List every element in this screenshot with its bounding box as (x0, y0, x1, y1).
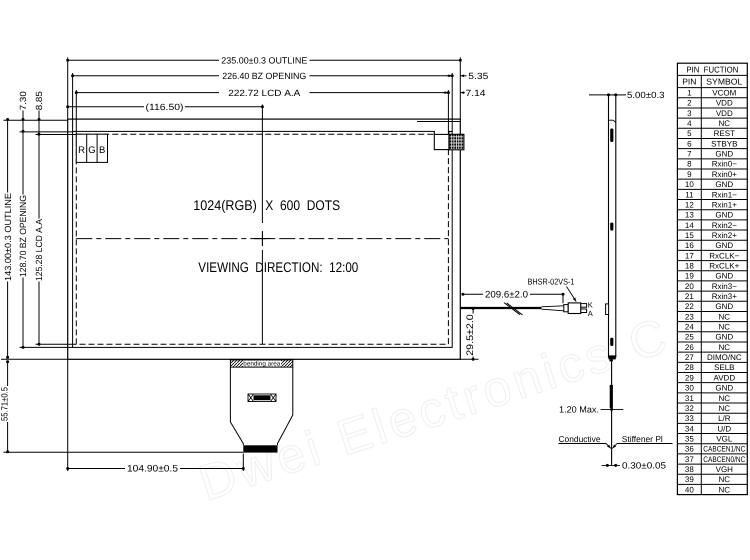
svg-text:9: 9 (687, 170, 692, 179)
svg-text:18: 18 (685, 261, 694, 270)
svg-text:30: 30 (685, 384, 694, 393)
svg-text:GND: GND (715, 150, 733, 159)
svg-text:bending area: bending area (243, 361, 281, 368)
svg-text:Rxin0+: Rxin0+ (712, 170, 737, 179)
svg-text:25: 25 (685, 333, 694, 342)
svg-text:NC: NC (719, 475, 731, 484)
svg-text:22: 22 (685, 302, 694, 311)
svg-text:L/R: L/R (718, 414, 731, 423)
svg-text:Conductive: Conductive (559, 434, 601, 444)
svg-text:21: 21 (685, 292, 694, 301)
svg-text:0.30±0.05: 0.30±0.05 (622, 461, 666, 471)
svg-text:19: 19 (685, 272, 694, 281)
svg-text:24: 24 (685, 323, 694, 332)
svg-text:4: 4 (687, 119, 692, 128)
svg-text:5.35: 5.35 (468, 71, 488, 81)
svg-text:29: 29 (685, 373, 694, 382)
svg-text:GND: GND (715, 241, 733, 250)
svg-text:NC: NC (719, 323, 731, 332)
svg-text:6: 6 (687, 139, 692, 148)
svg-text:40: 40 (685, 485, 694, 494)
svg-text:NC: NC (719, 343, 731, 352)
svg-text:Rxin1+: Rxin1+ (712, 200, 737, 209)
svg-text:RxCLK−: RxCLK− (709, 251, 739, 260)
svg-text:7: 7 (687, 150, 692, 159)
svg-text:SELB: SELB (714, 363, 734, 372)
svg-text:36: 36 (685, 445, 694, 454)
svg-text:34: 34 (685, 424, 694, 433)
svg-text:16: 16 (685, 241, 694, 250)
svg-text:31: 31 (685, 394, 694, 403)
svg-text:Rxin3+: Rxin3+ (712, 292, 737, 301)
svg-text:11: 11 (685, 190, 694, 199)
svg-text:DIMO/NC: DIMO/NC (707, 353, 742, 362)
svg-text:CABCEN0/NC: CABCEN0/NC (703, 455, 745, 464)
svg-text:PIN: PIN (682, 77, 696, 87)
svg-text:A: A (588, 309, 593, 318)
svg-text:Stiffener Pl: Stiffener Pl (622, 434, 663, 444)
svg-text:NC: NC (719, 119, 731, 128)
svg-text:8: 8 (687, 160, 692, 169)
svg-text:VGL: VGL (716, 434, 733, 443)
svg-text:14: 14 (685, 221, 694, 230)
svg-text:26: 26 (685, 343, 694, 352)
svg-text:CABCEN1/NC: CABCEN1/NC (703, 445, 745, 454)
svg-text:128.70 BZ OPENING: 128.70 BZ OPENING (18, 195, 28, 277)
svg-text:1: 1 (687, 89, 692, 98)
svg-text:55.71±0.5: 55.71±0.5 (0, 387, 9, 421)
svg-text:38: 38 (685, 465, 694, 474)
svg-text:Rxin0−: Rxin0− (712, 160, 737, 169)
svg-text:NC: NC (719, 404, 731, 413)
svg-text:NC: NC (719, 312, 731, 321)
svg-text:28: 28 (685, 363, 694, 372)
svg-text:3: 3 (687, 109, 692, 118)
svg-text:29.5±2.0: 29.5±2.0 (465, 314, 476, 356)
svg-text:VGH: VGH (716, 465, 734, 474)
svg-text:15: 15 (685, 231, 694, 240)
svg-text:R: R (78, 145, 85, 156)
svg-text:Rxin1−: Rxin1− (712, 190, 737, 199)
svg-text:VDD: VDD (716, 109, 733, 118)
svg-text:NC: NC (719, 485, 731, 494)
svg-text:VDD: VDD (716, 99, 733, 108)
svg-text:SYMBOL: SYMBOL (706, 77, 742, 87)
svg-text:2: 2 (687, 99, 692, 108)
svg-text:Rxin2+: Rxin2+ (712, 231, 737, 240)
svg-text:GND: GND (715, 333, 733, 342)
svg-text:8.85: 8.85 (34, 91, 44, 110)
svg-text:235.00±0.3 OUTLINE: 235.00±0.3 OUTLINE (221, 55, 307, 65)
svg-text:33: 33 (685, 414, 694, 423)
svg-text:104.90±0.5: 104.90±0.5 (127, 464, 178, 475)
svg-text:32: 32 (685, 404, 694, 413)
svg-text:U/D: U/D (717, 424, 731, 433)
svg-text:GND: GND (715, 272, 733, 281)
svg-text:GND: GND (715, 180, 733, 189)
svg-text:27: 27 (685, 353, 694, 362)
svg-text:1024(RGB): 1024(RGB) (193, 197, 256, 213)
svg-text:226.40 BZ OPENING: 226.40 BZ OPENING (222, 71, 306, 81)
svg-text:REST: REST (714, 129, 735, 138)
svg-text:Rxin2−: Rxin2− (712, 221, 737, 230)
svg-text:VIEWING DIRECTION: 12:00: VIEWING DIRECTION: 12:00 (198, 259, 358, 275)
svg-text:Rxin3−: Rxin3− (712, 282, 737, 291)
svg-text:AVDD: AVDD (713, 373, 735, 382)
svg-text:GND: GND (715, 384, 733, 393)
svg-text:37: 37 (685, 455, 694, 464)
svg-text:NC: NC (719, 394, 731, 403)
svg-text:RxCLK+: RxCLK+ (709, 261, 739, 270)
svg-text:222.72 LCD A.A: 222.72 LCD A.A (228, 88, 300, 98)
svg-text:209.6±2.0: 209.6±2.0 (485, 290, 528, 301)
svg-text:12: 12 (685, 200, 694, 209)
svg-text:10: 10 (685, 180, 694, 189)
svg-text:STBYB: STBYB (711, 139, 737, 148)
svg-text:23: 23 (685, 312, 694, 321)
svg-text:B: B (99, 145, 105, 156)
svg-text:1.20 Max.: 1.20 Max. (559, 405, 599, 415)
svg-text:BHSR-02VS-1: BHSR-02VS-1 (528, 276, 575, 286)
svg-text:143.00±0.3 OUTLINE: 143.00±0.3 OUTLINE (3, 193, 13, 281)
svg-text:(116.50): (116.50) (146, 102, 184, 112)
svg-text:GND: GND (715, 211, 733, 220)
svg-text:5: 5 (687, 129, 692, 138)
svg-text:20: 20 (685, 282, 694, 291)
svg-text:5.00±0.3: 5.00±0.3 (627, 90, 665, 100)
svg-text:35: 35 (685, 434, 694, 443)
svg-text:GND: GND (715, 302, 733, 311)
svg-text:PIN FUCTION: PIN FUCTION (686, 64, 738, 74)
svg-text:17: 17 (685, 251, 694, 260)
svg-text:G: G (88, 145, 95, 156)
svg-text:13: 13 (685, 211, 694, 220)
svg-text:39: 39 (685, 475, 694, 484)
svg-text:7.14: 7.14 (466, 88, 486, 98)
svg-text:125.28 LCD A.A: 125.28 LCD A.A (34, 219, 44, 281)
svg-text:7.30: 7.30 (18, 91, 28, 110)
svg-text:X 600 DOTS: X 600 DOTS (265, 197, 340, 213)
svg-text:VCOM: VCOM (712, 89, 736, 98)
